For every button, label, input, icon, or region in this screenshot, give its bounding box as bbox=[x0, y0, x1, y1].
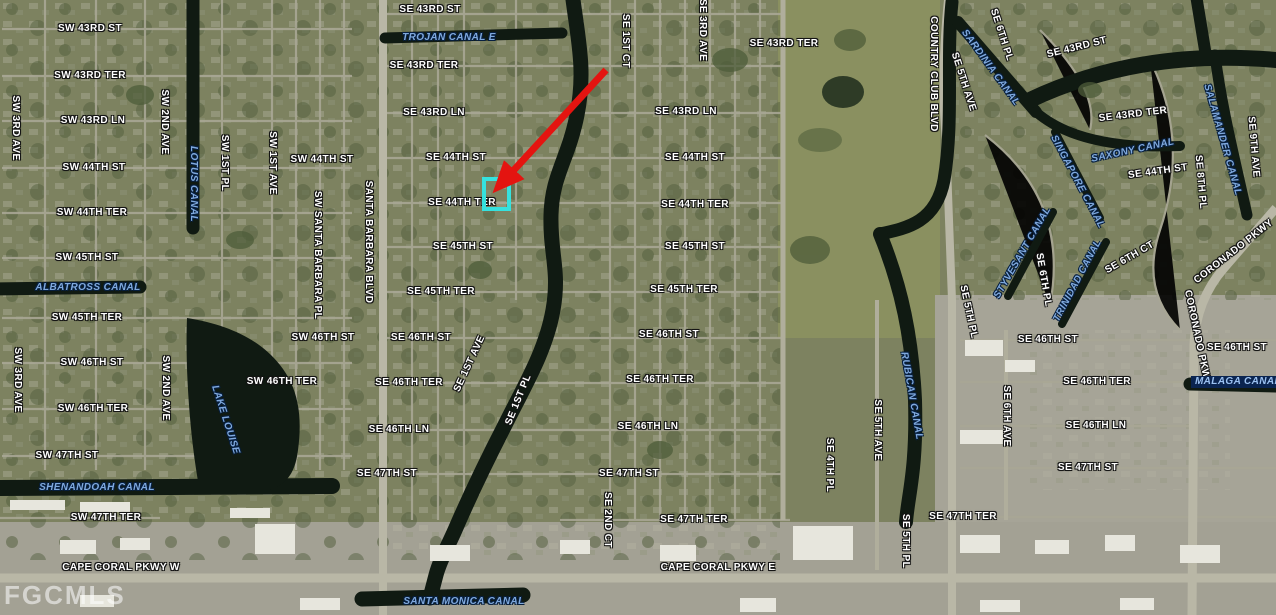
street-label: SW 2ND AVE bbox=[159, 89, 169, 154]
street-label: SE 5TH PL bbox=[900, 514, 910, 568]
canal-label: LOTUS CANAL bbox=[188, 146, 198, 222]
street-label: SE 1ST AVE bbox=[453, 334, 488, 393]
street-label: SW 3RD AVE bbox=[12, 347, 22, 412]
street-label: CORONADO PKWY bbox=[1193, 218, 1276, 286]
street-label: SE 46TH LN bbox=[618, 422, 679, 432]
street-label: COUNTRY CLUB BLVD bbox=[928, 16, 938, 132]
street-label: SANTA BARBARA BLVD bbox=[363, 181, 373, 304]
canal-label: SAXONY CANAL bbox=[1091, 137, 1176, 164]
map-labels-layer: SW 43RD STSW 43RD TERSW 43RD LNSW 44TH S… bbox=[0, 0, 1276, 615]
street-label: SE 46TH ST bbox=[391, 333, 451, 343]
street-label: SE 44TH ST bbox=[1128, 163, 1189, 181]
canal-label: TROJAN CANAL E bbox=[402, 33, 496, 43]
street-label: SE 1ST CT bbox=[620, 14, 630, 68]
aerial-map-canvas[interactable]: SW 43RD STSW 43RD TERSW 43RD LNSW 44TH S… bbox=[0, 0, 1276, 615]
street-label: SE 9TH AVE bbox=[1245, 116, 1260, 178]
canal-label: SANTA MONICA CANAL bbox=[403, 597, 524, 607]
street-label: SE 47TH TER bbox=[929, 512, 997, 522]
street-label: SW 43RD TER bbox=[54, 71, 126, 81]
street-label: SE 46TH TER bbox=[1063, 377, 1131, 387]
street-label: SE 46TH ST bbox=[1018, 335, 1078, 345]
street-label: SW 3RD AVE bbox=[10, 95, 20, 160]
street-label: SE 5TH AVE bbox=[949, 51, 977, 112]
street-label: SW 44TH TER bbox=[57, 208, 128, 218]
street-label: SE 43RD TER bbox=[390, 61, 459, 71]
street-label: CORONADO PKWY bbox=[1182, 289, 1212, 386]
street-label: SE 44TH ST bbox=[665, 153, 725, 163]
street-label: SE 6TH AVE bbox=[1001, 385, 1011, 446]
street-label: SE 5TH AVE bbox=[872, 399, 882, 460]
street-label: SE 1ST PL bbox=[504, 373, 533, 426]
street-label: SE 46TH ST bbox=[639, 330, 699, 340]
street-label: SE 43RD LN bbox=[655, 107, 717, 117]
canal-label: SHENANDOAH CANAL bbox=[39, 483, 155, 493]
street-label: SE 43RD TER bbox=[1098, 106, 1168, 124]
canal-label: MALAGA CANAL bbox=[1191, 376, 1276, 388]
street-label: SE 43RD ST bbox=[399, 5, 460, 15]
canal-label: ALBATROSS CANAL bbox=[35, 283, 140, 293]
street-label: SW 46TH ST bbox=[292, 333, 355, 343]
canal-label: TRINIDAD CANAL bbox=[1052, 238, 1104, 323]
street-label: SW 43RD ST bbox=[58, 24, 122, 34]
street-label: SE 46TH TER bbox=[626, 375, 694, 385]
street-label: SW 45TH ST bbox=[56, 253, 119, 263]
street-label: SE 6TH PL bbox=[1033, 252, 1052, 307]
street-label: SW 2ND AVE bbox=[160, 355, 170, 420]
street-label: SW 46TH ST bbox=[61, 358, 124, 368]
street-label: SE 46TH LN bbox=[1066, 421, 1127, 431]
street-label: SE 3RD AVE bbox=[697, 0, 707, 61]
street-label: SE 47TH ST bbox=[599, 469, 659, 479]
canal-label: SINGAPORE CANAL bbox=[1048, 134, 1106, 230]
highlighted-property bbox=[482, 177, 511, 211]
street-label: SE 45TH ST bbox=[433, 242, 493, 252]
street-label: SE 2ND CT bbox=[602, 492, 612, 548]
street-label: SE 43RD LN bbox=[403, 108, 465, 118]
street-label: SE 45TH ST bbox=[665, 242, 725, 252]
street-label: SW 47TH TER bbox=[71, 513, 142, 523]
street-label: SE 43RD ST bbox=[1046, 36, 1108, 61]
street-label: SW SANTA BARBARA PL bbox=[312, 191, 322, 319]
street-label: SE 5TH PL bbox=[957, 284, 978, 339]
street-label: SE 46TH LN bbox=[369, 425, 430, 435]
street-label: SE 8TH PL bbox=[1193, 155, 1208, 210]
street-label: SW 1ST PL bbox=[219, 135, 229, 191]
fgcmls-watermark: FGCMLS bbox=[4, 580, 126, 611]
street-label: SE 44TH ST bbox=[426, 153, 486, 163]
street-label: SW 45TH TER bbox=[52, 313, 123, 323]
street-label: SE 46TH TER bbox=[375, 378, 443, 388]
street-label: SW 1ST AVE bbox=[267, 131, 277, 194]
street-label: SW 46TH TER bbox=[247, 377, 318, 387]
street-label: SE 45TH TER bbox=[407, 287, 475, 297]
canal-label: LAKE LOUISE bbox=[209, 384, 241, 455]
street-label: SE 47TH ST bbox=[1058, 463, 1118, 473]
street-label: SW 44TH ST bbox=[63, 163, 126, 173]
street-label: SE 6TH PL bbox=[988, 8, 1014, 63]
street-label: SE 44TH TER bbox=[661, 200, 729, 210]
street-label: SE 47TH ST bbox=[357, 469, 417, 479]
street-label: SW 47TH ST bbox=[36, 451, 99, 461]
street-label: CAPE CORAL PKWY E bbox=[661, 563, 776, 573]
canal-label: RUBICAN CANAL bbox=[898, 351, 923, 440]
street-label: SE 47TH TER bbox=[660, 515, 728, 525]
street-label: SE 46TH ST bbox=[1207, 343, 1267, 353]
street-label: SE 43RD TER bbox=[750, 39, 819, 49]
canal-label: SALAMANDER CANAL bbox=[1201, 83, 1242, 197]
street-label: CAPE CORAL PKWY W bbox=[62, 563, 180, 573]
street-label: SE 6TH CT bbox=[1104, 240, 1156, 276]
street-label: SW 44TH ST bbox=[291, 155, 354, 165]
street-label: SE 4TH PL bbox=[824, 438, 834, 492]
street-label: SW 46TH TER bbox=[58, 404, 129, 414]
street-label: SW 43RD LN bbox=[61, 116, 126, 126]
street-label: SE 45TH TER bbox=[650, 285, 718, 295]
